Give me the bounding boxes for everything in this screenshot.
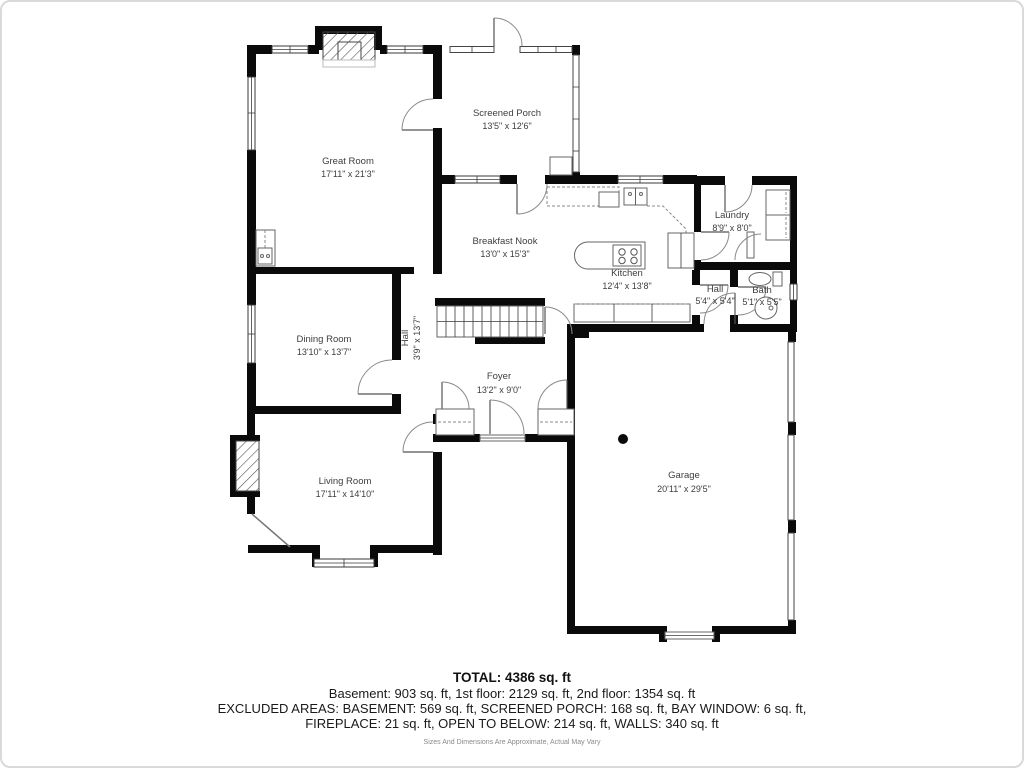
window <box>248 305 255 363</box>
foyer-dims: 13'2" x 9'0" <box>477 385 521 395</box>
screened-porch-label: Screened Porch <box>473 108 541 119</box>
refrigerator-icon <box>668 233 694 268</box>
toilet-icon <box>749 272 782 286</box>
bath-dims: 5'1" x 5'5" <box>742 297 781 307</box>
fireplace-icon <box>323 32 375 67</box>
window <box>455 176 500 183</box>
garage-label: Garage <box>668 470 700 481</box>
living-room-door <box>403 422 433 452</box>
garage-door <box>665 632 714 639</box>
kitchen-counter <box>547 187 619 207</box>
living-room-dims: 17'11" x 14'10" <box>316 489 375 499</box>
screen-wall <box>520 47 572 53</box>
garage-side-wall <box>788 342 794 620</box>
doors <box>358 18 766 452</box>
kitchen-dims: 12'4" x 13'8" <box>602 281 651 291</box>
porch-kitchen-door <box>517 184 547 214</box>
laundry-closet-door <box>735 232 761 260</box>
hall-center-label-group: Hall 3'9" x 13'7" <box>400 316 422 360</box>
hall-upper-label: Hall <box>707 284 723 295</box>
excluded-areas-text-2: FIREPLACE: 21 sq. ft, OPEN TO BELOW: 214… <box>2 716 1022 731</box>
foyer-closet-right <box>538 409 574 435</box>
kitchen-lower-counter <box>574 304 690 322</box>
great-room-label: Great Room <box>322 156 374 167</box>
disclaimer-text: Sizes And Dimensions Are Approximate, Ac… <box>2 739 1022 746</box>
dining-room-dims: 13'10" x 13'7" <box>297 347 351 357</box>
window <box>248 77 255 150</box>
corner-counter <box>647 206 686 233</box>
front-door <box>480 400 525 441</box>
window <box>314 559 374 567</box>
floor-areas-text: Basement: 903 sq. ft, 1st floor: 2129 sq… <box>2 686 1022 701</box>
area-summary: TOTAL: 4386 sq. ft Basement: 903 sq. ft,… <box>2 669 1022 746</box>
foyer-label: Foyer <box>487 371 511 382</box>
excluded-areas-text-1: EXCLUDED AREAS: BASEMENT: 569 sq. ft, SC… <box>2 701 1022 716</box>
wet-bar <box>256 230 275 266</box>
angled-wall <box>252 514 290 547</box>
living-room-label: Living Room <box>319 476 372 487</box>
garage-dims: 20'11" x 29'5" <box>657 484 711 494</box>
screen-wall <box>573 55 579 172</box>
garage-column <box>618 434 628 444</box>
hall-center-dims: 3'9" x 13'7" <box>412 316 422 360</box>
hall-center-label: Hall <box>400 330 411 346</box>
hall-upper-dims: 5'4" x 5'4" <box>695 296 734 306</box>
screen-wall <box>450 47 494 53</box>
window <box>272 46 308 53</box>
washer-icon <box>766 190 790 215</box>
laundry-label: Laundry <box>715 210 750 221</box>
laundry-dims: 8'9" x 8'0" <box>712 223 751 233</box>
screened-porch-dims: 13'5" x 12'6" <box>482 121 531 131</box>
floor-plan-drawing: Great Room 17'11" x 21'3" Screened Porch… <box>2 2 1024 768</box>
porch-step <box>550 157 572 175</box>
great-room-door <box>402 99 433 130</box>
floor-plan-page: Great Room 17'11" x 21'3" Screened Porch… <box>0 0 1024 768</box>
window <box>790 284 797 300</box>
porch-entry-door <box>494 18 522 46</box>
laundry-door <box>701 232 729 260</box>
dining-room-label: Dining Room <box>297 334 352 345</box>
breakfast-nook-dims: 13'0" x 15'3" <box>480 249 529 259</box>
foyer-closet-right-door <box>538 380 567 409</box>
dining-door <box>358 360 392 394</box>
cooktop-icon <box>613 245 641 266</box>
stairs-icon <box>437 306 543 337</box>
dryer-icon <box>766 215 790 240</box>
window <box>618 176 663 183</box>
window <box>387 46 423 53</box>
bath-label: Bath <box>752 285 772 296</box>
fireplace-icon <box>236 441 259 491</box>
sink-icon <box>624 188 647 205</box>
breakfast-nook-label: Breakfast Nook <box>473 236 538 247</box>
total-area-text: TOTAL: 4386 sq. ft <box>2 669 1022 686</box>
great-room-dims: 17'11" x 21'3" <box>321 169 375 179</box>
foyer-closet-left <box>436 409 474 435</box>
kitchen-label: Kitchen <box>611 268 643 279</box>
foyer-closet-left-door <box>442 382 469 409</box>
laundry-service-door <box>725 185 752 212</box>
